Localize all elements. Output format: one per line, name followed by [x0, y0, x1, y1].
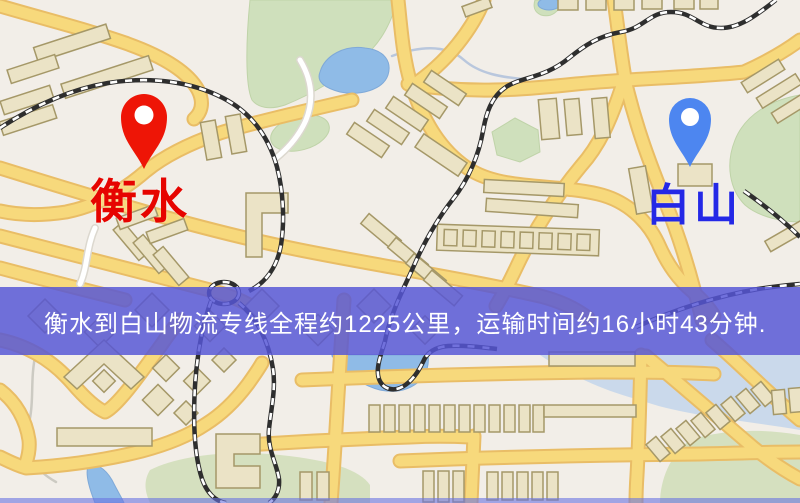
destination-pin-icon	[669, 98, 711, 167]
bottom-edge-strip	[0, 498, 800, 503]
destination-city-label: 白山	[646, 184, 742, 228]
route-info-banner: 衡水到白山物流专线全程约1225公里，运输时间约16小时43分钟.	[0, 287, 800, 355]
origin-city-label: 衡水	[90, 178, 190, 225]
logistics-route-map: 衡水 白山 衡水到白山物流专线全程约1225公里，运输时间约16小时43分钟.	[0, 0, 800, 503]
map-canvas	[0, 0, 800, 503]
route-info-text: 衡水到白山物流专线全程约1225公里，运输时间约16小时43分钟.	[0, 304, 766, 339]
